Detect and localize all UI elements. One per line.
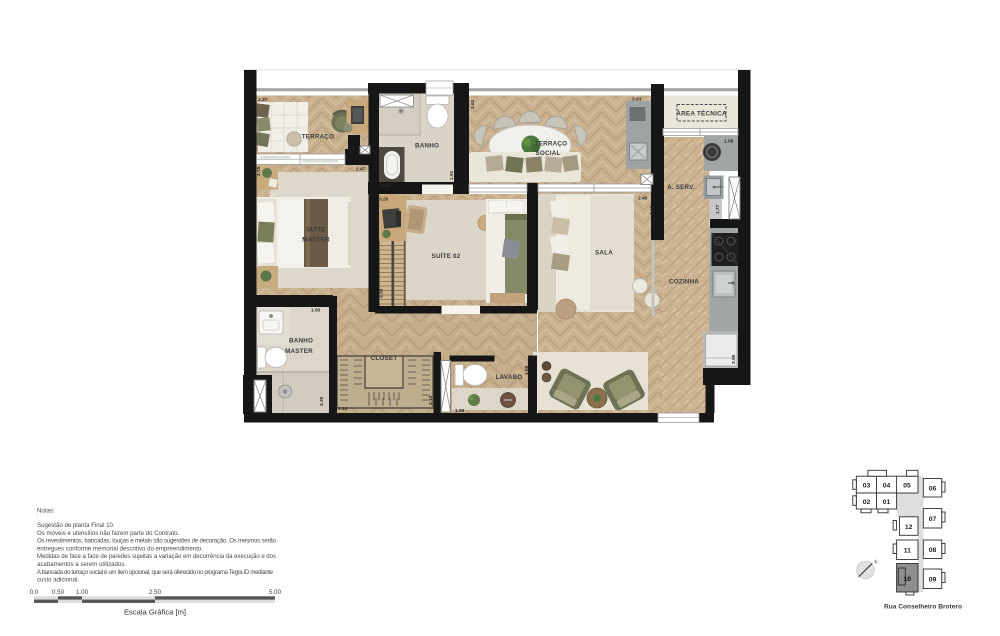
svg-text:5.00: 5.00 xyxy=(269,589,282,596)
svg-text:2.30: 2.30 xyxy=(319,396,325,406)
svg-text:SUÍTE 02: SUÍTE 02 xyxy=(432,251,461,260)
svg-text:CLOSET: CLOSET xyxy=(371,355,398,362)
svg-text:SOCIAL: SOCIAL xyxy=(536,150,561,157)
svg-text:03: 03 xyxy=(863,482,871,489)
svg-text:SALA: SALA xyxy=(595,250,613,257)
svg-text:1.91: 1.91 xyxy=(449,170,455,180)
svg-text:2.37: 2.37 xyxy=(258,97,268,103)
svg-text:TERRAÇO: TERRAÇO xyxy=(302,134,335,141)
svg-text:07: 07 xyxy=(929,516,937,523)
svg-text:04: 04 xyxy=(883,482,891,489)
svg-text:2.47: 2.47 xyxy=(356,167,366,173)
svg-text:1.50: 1.50 xyxy=(311,308,321,314)
svg-text:LAVABO: LAVABO xyxy=(496,374,523,381)
svg-text:08: 08 xyxy=(929,547,937,554)
svg-text:Notas:: Notas: xyxy=(37,508,55,515)
svg-text:entregues conforme memorial de: entregues conforme memorial descritivo d… xyxy=(37,545,203,552)
svg-text:1.63: 1.63 xyxy=(381,183,391,189)
svg-text:2.10: 2.10 xyxy=(338,406,348,412)
svg-text:TERRAÇO: TERRAÇO xyxy=(535,141,568,148)
svg-text:custo adicional.: custo adicional. xyxy=(37,577,79,584)
svg-text:1.00: 1.00 xyxy=(76,589,89,596)
svg-text:3.93: 3.93 xyxy=(632,97,642,103)
svg-text:1.08: 1.08 xyxy=(524,365,530,375)
svg-text:10: 10 xyxy=(904,576,912,583)
svg-text:12: 12 xyxy=(905,524,913,531)
svg-text:4.60: 4.60 xyxy=(649,205,655,215)
svg-text:Os móveis e utensílios não faz: Os móveis e utensílios não fazem parte d… xyxy=(37,530,180,537)
svg-text:Escala Gráfica [m]: Escala Gráfica [m] xyxy=(124,608,186,617)
svg-text:Os revestimentos, bancadas, lo: Os revestimentos, bancadas, louças e met… xyxy=(37,538,277,545)
svg-text:Sugestão de planta Final 10.: Sugestão de planta Final 10. xyxy=(37,522,115,529)
svg-text:2.50: 2.50 xyxy=(149,589,162,596)
svg-text:SUÍTE: SUÍTE xyxy=(306,225,326,234)
svg-text:Medidas de face a face de pare: Medidas de face a face de paredes sujeit… xyxy=(37,553,276,560)
svg-text:Rua Conselheiro Brotero: Rua Conselheiro Brotero xyxy=(884,604,962,611)
svg-text:1.59: 1.59 xyxy=(724,139,734,145)
svg-text:06: 06 xyxy=(929,486,937,493)
svg-text:11: 11 xyxy=(904,548,911,555)
svg-text:2.75: 2.75 xyxy=(256,166,262,176)
svg-text:3.00: 3.00 xyxy=(731,354,737,364)
svg-text:1.59: 1.59 xyxy=(455,408,465,414)
svg-text:COZINHA: COZINHA xyxy=(669,279,699,286)
svg-text:A. SERV.: A. SERV. xyxy=(667,184,695,191)
svg-text:A bancada do terraço social é: A bancada do terraço social é um item op… xyxy=(37,569,274,576)
svg-text:2.12: 2.12 xyxy=(428,395,434,405)
svg-text:02: 02 xyxy=(863,499,871,506)
svg-text:MASTER: MASTER xyxy=(302,237,330,244)
svg-text:05: 05 xyxy=(903,482,911,489)
svg-text:ÁREA TÉCNICA: ÁREA TÉCNICA xyxy=(676,109,727,118)
svg-text:BANHO: BANHO xyxy=(289,338,313,345)
svg-text:09: 09 xyxy=(929,577,937,584)
svg-text:3.20: 3.20 xyxy=(379,197,389,203)
svg-text:01: 01 xyxy=(883,499,891,506)
svg-text:1.77: 1.77 xyxy=(715,204,721,214)
svg-text:acabamentos a serem utilizados: acabamentos a serem utilizados. xyxy=(37,561,126,568)
svg-text:1.62: 1.62 xyxy=(470,99,476,109)
svg-text:2.36: 2.36 xyxy=(379,288,385,298)
svg-text:BANHO: BANHO xyxy=(415,143,439,150)
svg-text:0.50: 0.50 xyxy=(52,589,65,596)
svg-text:0.0: 0.0 xyxy=(30,589,39,596)
svg-text:MASTER: MASTER xyxy=(285,348,313,355)
svg-text:2.46: 2.46 xyxy=(638,196,648,202)
